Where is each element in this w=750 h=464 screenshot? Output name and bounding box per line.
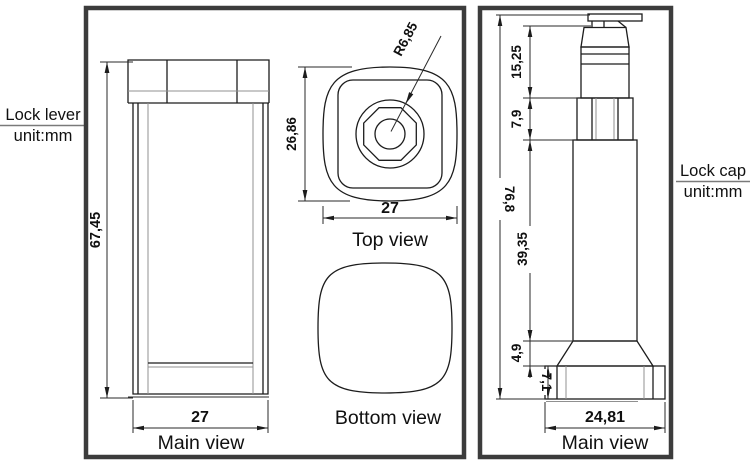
dim-value-lever-width: 27 [191, 409, 209, 426]
dim-value-cap-overall-height: 76,8 [502, 186, 517, 213]
lever-main-view-label: Main view [158, 432, 246, 454]
dim-value-cap-base-width: 24,81 [585, 409, 625, 426]
technical-drawing: Lock lever unit:mm Lock cap unit:mm [0, 0, 750, 464]
dim-value-cap-base-height: 7,1 [539, 373, 554, 392]
dim-value-topview-height: 26,86 [284, 117, 299, 151]
lock-lever-callout: Lock lever unit:mm [0, 106, 86, 145]
dim-value-cap-top-section: 15,25 [509, 45, 524, 79]
lock-cap-callout-unit: unit:mm [684, 183, 743, 201]
dim-value-cap-body-height: 39,35 [515, 232, 530, 266]
lock-lever-callout-title: Lock lever [5, 106, 81, 124]
lock-lever-callout-unit: unit:mm [14, 127, 73, 145]
technical-drawing-page: Lock lever unit:mm Lock cap unit:mm [0, 0, 750, 464]
lever-top-view-label: Top view [352, 229, 429, 251]
lock-cap-callout-title: Lock cap [680, 162, 746, 180]
cap-main-view-label: Main view [562, 432, 650, 454]
lever-bottom-view-label: Bottom view [335, 407, 442, 429]
dim-value-cap-flare-height: 4,9 [509, 344, 524, 363]
dim-value-cap-collar-height: 7,9 [509, 110, 524, 129]
lock-cap-panel: 76,8 15,25 7,9 39,35 [480, 8, 671, 457]
lock-cap-callout: Lock cap unit:mm [676, 162, 750, 201]
dim-value-lever-height: 67,45 [88, 212, 104, 248]
dim-value-topview-width: 27 [381, 200, 399, 217]
lock-lever-panel: 67,45 27 Main view R [86, 8, 464, 457]
